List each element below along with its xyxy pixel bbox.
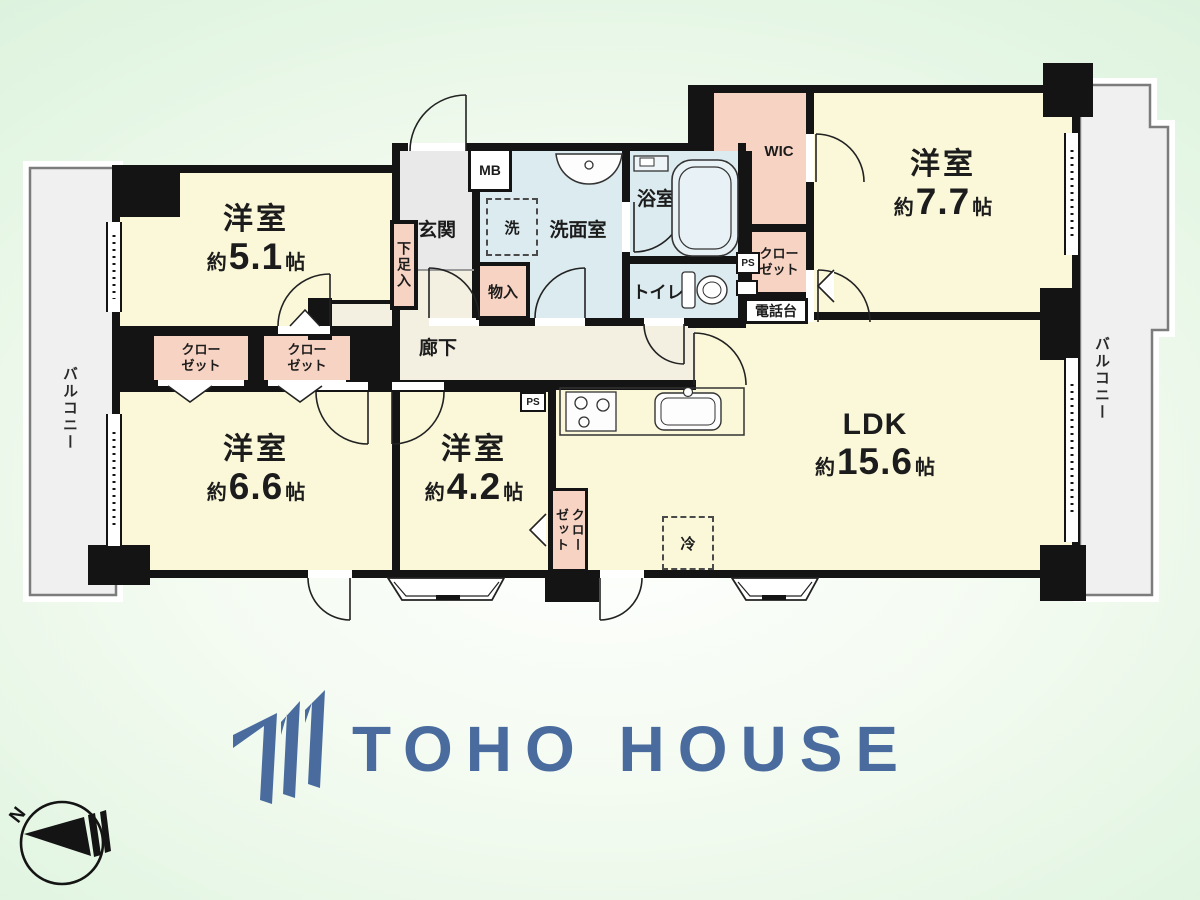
- closet-east-label: クローゼット: [752, 238, 806, 286]
- window-ldk: [1064, 358, 1080, 542]
- fridge-space: 冷: [662, 516, 714, 570]
- wic-label: WIC: [752, 140, 806, 162]
- closet-4-2: クローゼット: [550, 488, 588, 572]
- compass-n-label: N: [5, 803, 30, 827]
- logo-text: TOHO HOUSE: [352, 712, 911, 786]
- bathroom-label: 浴室: [630, 186, 682, 208]
- phone-stand: 電話台: [744, 298, 808, 324]
- floor-plan-page: クローゼット クローゼット MB 下足入 物入 PS 電話台 PS クローゼット…: [0, 0, 1200, 900]
- hallway-label: 廊下: [408, 334, 468, 358]
- washer-space: 洗: [486, 198, 538, 256]
- storage-box: 物入: [476, 262, 530, 320]
- entrance-label: 玄関: [402, 216, 472, 240]
- bay-window-ldk: [732, 578, 818, 600]
- meter-box: MB: [468, 148, 512, 192]
- ldk-doorway: [696, 328, 746, 390]
- logo-mark-icon: [233, 684, 339, 810]
- bay-window-4-2: [388, 578, 504, 600]
- room-6-6-label: 洋室 約6.6帖: [120, 400, 392, 540]
- closet-box-2: クローゼット: [260, 332, 354, 384]
- room-5-1-ext: [120, 300, 310, 326]
- room-7-7-label: 洋室 約7.7帖: [814, 120, 1072, 250]
- balcony-right-label: バルコニー: [1088, 336, 1112, 432]
- room-5-1-label: 洋室 約5.1帖: [120, 185, 392, 295]
- balcony-left-label: バルコニー: [56, 366, 80, 462]
- room-4-2-label: 洋室 約4.2帖: [400, 405, 548, 535]
- toilet-label: トイレ: [632, 280, 684, 300]
- north-arrow-icon: N: [4, 786, 120, 900]
- ldk-label: LDK 約15.6帖: [760, 390, 990, 500]
- washroom-label: 洗面室: [534, 216, 622, 240]
- closet-box-1: クローゼット: [150, 332, 252, 384]
